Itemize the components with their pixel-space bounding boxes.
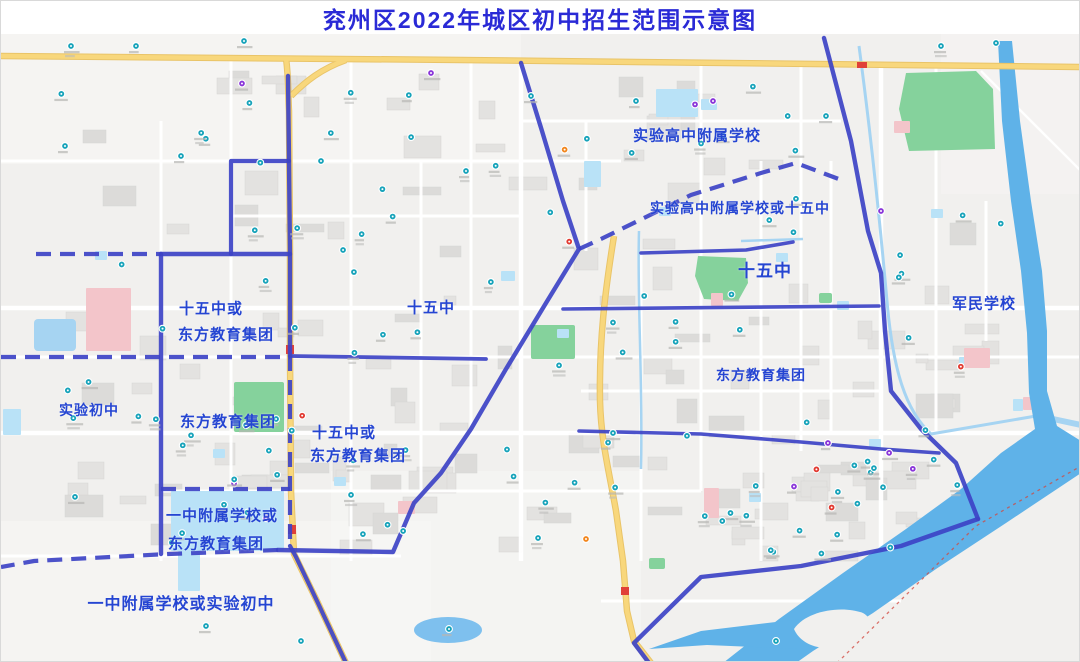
enrollment-map-figure: 实验高中附属学校实验高中附属学校或十五中十五中或东方教育集团十五中十五中军民学校… [0, 0, 1080, 662]
map-title: 兖州区2022年城区初中招生范围示意图 [323, 1, 757, 35]
title-bar: 兖州区2022年城区初中招生范围示意图 [1, 1, 1079, 34]
map-canvas [1, 1, 1080, 662]
